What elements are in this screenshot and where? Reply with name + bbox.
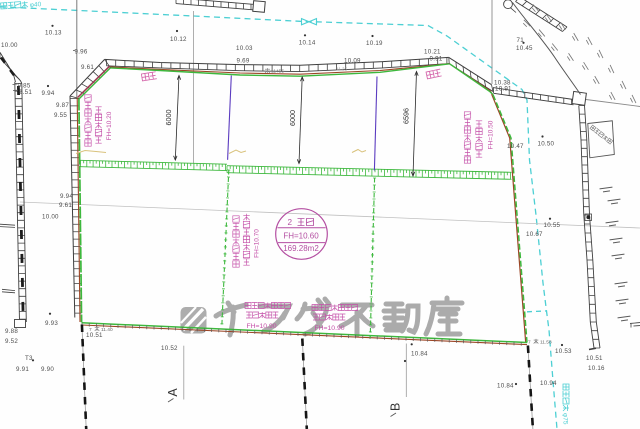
svg-text:10.50: 10.50 xyxy=(538,140,555,147)
svg-text:FH=10.50: FH=10.50 xyxy=(488,120,495,149)
svg-text:6596: 6596 xyxy=(401,108,410,124)
svg-text:9.52: 9.52 xyxy=(5,338,18,345)
svg-text:9.91: 9.91 xyxy=(430,56,443,63)
svg-text:φ40: φ40 xyxy=(30,1,42,9)
svg-text:B: B xyxy=(389,403,403,411)
svg-text:9.69: 9.69 xyxy=(237,57,250,64)
svg-text:FH=10.70: FH=10.70 xyxy=(254,229,261,258)
svg-text:9.51: 9.51 xyxy=(19,89,32,96)
svg-text:11.40: 11.40 xyxy=(101,327,113,333)
svg-text:10.09: 10.09 xyxy=(344,58,361,65)
svg-text:10.84: 10.84 xyxy=(497,382,514,389)
svg-text:10.16: 10.16 xyxy=(588,365,605,372)
svg-text:11455: 11455 xyxy=(271,69,284,75)
svg-text:9.96: 9.96 xyxy=(75,49,88,56)
svg-text:6000: 6000 xyxy=(288,110,297,126)
svg-text:10.13: 10.13 xyxy=(45,30,62,37)
svg-text:9.94: 9.94 xyxy=(42,90,55,97)
svg-text:FH=10.60: FH=10.60 xyxy=(283,232,319,241)
svg-text:11.25: 11.25 xyxy=(336,67,348,72)
svg-text:10.19: 10.19 xyxy=(366,40,383,47)
svg-text:FH=10.90: FH=10.90 xyxy=(247,323,277,330)
svg-text:10.52: 10.52 xyxy=(161,345,178,352)
svg-text:10.03: 10.03 xyxy=(236,45,253,52)
svg-text:9.93: 9.93 xyxy=(45,320,58,327)
svg-text:9.55: 9.55 xyxy=(54,112,67,119)
svg-text:9.90: 9.90 xyxy=(41,366,54,373)
svg-text:10.00: 10.00 xyxy=(1,42,18,49)
svg-text:10.51: 10.51 xyxy=(586,355,603,362)
svg-text:2: 2 xyxy=(288,218,293,227)
svg-text:9.61: 9.61 xyxy=(81,64,94,71)
svg-text:10.51: 10.51 xyxy=(86,332,103,339)
svg-text:10.55: 10.55 xyxy=(544,222,561,229)
svg-text:9.88: 9.88 xyxy=(5,328,18,335)
svg-text:9.94: 9.94 xyxy=(60,193,73,200)
svg-text:10.00: 10.00 xyxy=(42,213,59,220)
svg-text:A: A xyxy=(166,388,180,397)
svg-text:9.91: 9.91 xyxy=(16,366,29,373)
svg-text:11.58: 11.58 xyxy=(540,339,552,345)
svg-text:10.91: 10.91 xyxy=(495,86,512,93)
svg-text:9.87: 9.87 xyxy=(56,102,69,109)
svg-text:9.61: 9.61 xyxy=(59,202,72,209)
svg-text:10.21: 10.21 xyxy=(424,48,441,55)
svg-text:10.53: 10.53 xyxy=(555,348,572,355)
svg-text:10.45: 10.45 xyxy=(516,45,533,52)
svg-text:10.12: 10.12 xyxy=(170,36,187,43)
svg-text:T3: T3 xyxy=(25,355,33,362)
svg-text:FH=10.20: FH=10.20 xyxy=(106,111,113,140)
svg-text:φ75: φ75 xyxy=(562,413,569,425)
svg-text:10.84: 10.84 xyxy=(411,350,428,357)
svg-text:10.14: 10.14 xyxy=(299,40,316,47)
svg-text:10.47: 10.47 xyxy=(507,143,524,150)
svg-text:7: 7 xyxy=(89,327,92,333)
svg-text:6000: 6000 xyxy=(164,110,173,126)
svg-text:7: 7 xyxy=(528,339,531,345)
svg-text:10.94: 10.94 xyxy=(540,380,557,387)
svg-text:FH=10.90: FH=10.90 xyxy=(315,325,345,332)
svg-text:10.67: 10.67 xyxy=(526,231,543,238)
svg-text:169.28m2: 169.28m2 xyxy=(283,244,319,253)
